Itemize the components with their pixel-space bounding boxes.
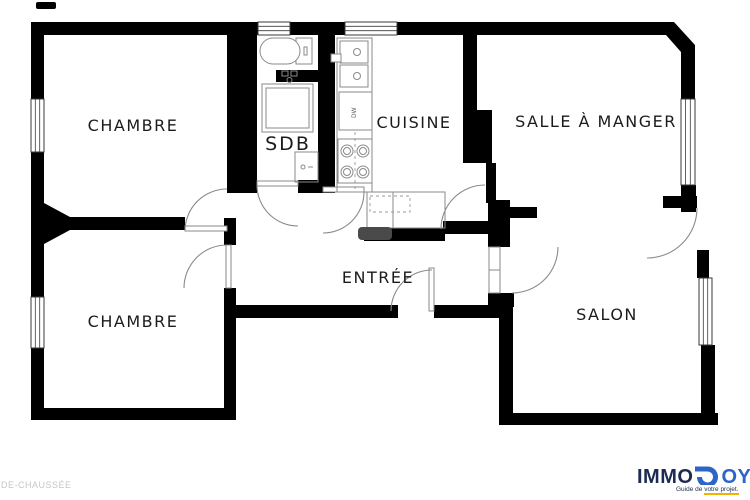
floor-plan-page: DW CHAMBRE SDB CUISINE SALLE À MANGER — [0, 0, 750, 500]
room-label-chambre2: CHAMBRE — [88, 312, 179, 331]
toilet-icon — [260, 38, 312, 64]
wall-divider-block — [488, 200, 510, 247]
window-symbol-top-2 — [345, 22, 397, 35]
door-sdb — [257, 181, 298, 226]
radiator — [358, 227, 392, 240]
doors — [184, 181, 697, 311]
wall-sdb-west — [227, 35, 257, 193]
kitchen-fixtures: DW — [331, 38, 445, 240]
bathroom-fixtures — [260, 38, 318, 182]
wall-top-b — [290, 22, 345, 35]
door-cuisine — [323, 187, 364, 233]
door-chambre2 — [184, 245, 231, 288]
wall-left-c — [31, 348, 44, 408]
tagline-highlight: votre projet. — [704, 486, 738, 495]
window-symbol-left-1 — [31, 99, 44, 152]
room-label-sdb: SDB — [265, 133, 311, 155]
door-chambre1 — [185, 189, 227, 231]
wall-right-d — [701, 345, 715, 415]
wall-top-c — [397, 22, 645, 35]
wall-left-a — [31, 22, 44, 99]
window-symbol-top-1 — [258, 22, 290, 35]
wall-entree-bottom-left — [228, 305, 398, 318]
floor-level-label: DE-CHAUSSÉE — [1, 480, 72, 490]
dishwasher-label: DW — [351, 107, 358, 118]
room-label-chambre1: CHAMBRE — [88, 116, 179, 135]
room-label-cuisine: CUISINE — [376, 113, 451, 132]
wall-stub-mid — [510, 207, 537, 218]
wall-divider-foot — [488, 293, 514, 307]
logo-tagline: Guide de votre projet. — [676, 486, 739, 493]
wall-hall-north-b — [443, 221, 490, 234]
wall-chambres-divider — [44, 203, 185, 244]
overhead-cabinet-dashed — [370, 196, 410, 212]
wall-salon-bottom — [499, 413, 718, 425]
floor-plan: DW CHAMBRE SDB CUISINE SALLE À MANGER — [0, 0, 750, 500]
wall-divider-mid — [486, 163, 496, 203]
wall-chambre2-bottom — [31, 408, 236, 420]
walls — [31, 2, 718, 425]
dishwasher-icon: DW — [339, 92, 372, 130]
room-label-salon: SALON — [576, 305, 638, 324]
small-sink-icon — [295, 152, 318, 182]
window-symbol-right-2 — [699, 278, 712, 345]
tagline-prefix: Guide de — [676, 486, 704, 493]
room-label-entree: ENTRÉE — [342, 268, 414, 287]
wall-chambre2-east-b — [224, 288, 236, 408]
wall-stub-dining — [663, 196, 697, 208]
window-symbol-left-2 — [31, 297, 44, 348]
wall-kitchen-jog — [463, 110, 492, 163]
door-salon-double — [489, 247, 558, 293]
top-tick-mark — [36, 2, 56, 9]
wall-corner-chamfer — [645, 22, 695, 86]
wall-top-a — [31, 22, 258, 35]
window-symbol-right-1 — [681, 99, 695, 185]
wall-kitchen-divider-top — [463, 35, 477, 113]
kitchen-counter-bottom — [367, 192, 445, 228]
door-dining-salon — [647, 208, 697, 258]
wall-right-c — [697, 250, 709, 278]
wall-left-b — [31, 152, 44, 297]
room-label-salle-a-manger: SALLE À MANGER — [515, 112, 677, 131]
wall-right-a — [681, 86, 695, 99]
